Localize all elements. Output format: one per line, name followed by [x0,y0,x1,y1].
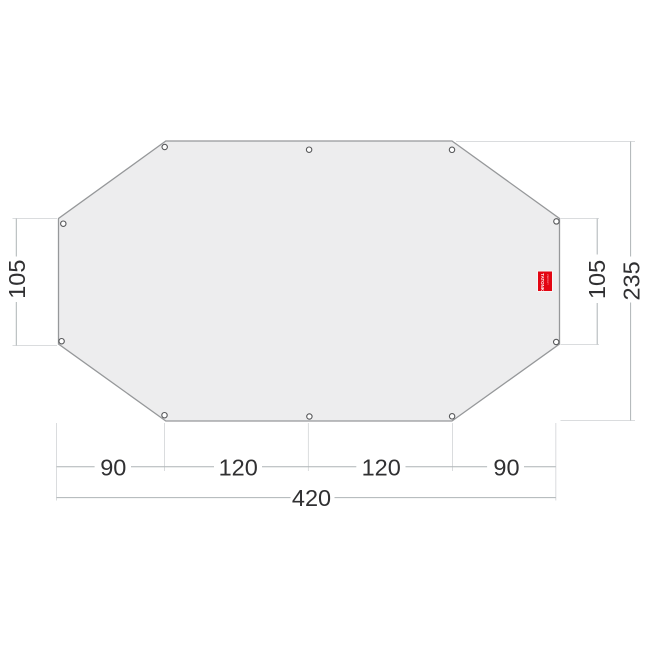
svg-text:PROTECT: PROTECT [546,274,548,285]
svg-text:105: 105 [4,260,30,299]
svg-text:235: 235 [618,261,644,300]
svg-text:120: 120 [219,454,258,480]
svg-text:120: 120 [362,454,401,480]
svg-text:90: 90 [100,454,126,480]
svg-text:420: 420 [292,485,331,511]
svg-text:90: 90 [493,454,519,480]
svg-text:105: 105 [584,260,610,299]
